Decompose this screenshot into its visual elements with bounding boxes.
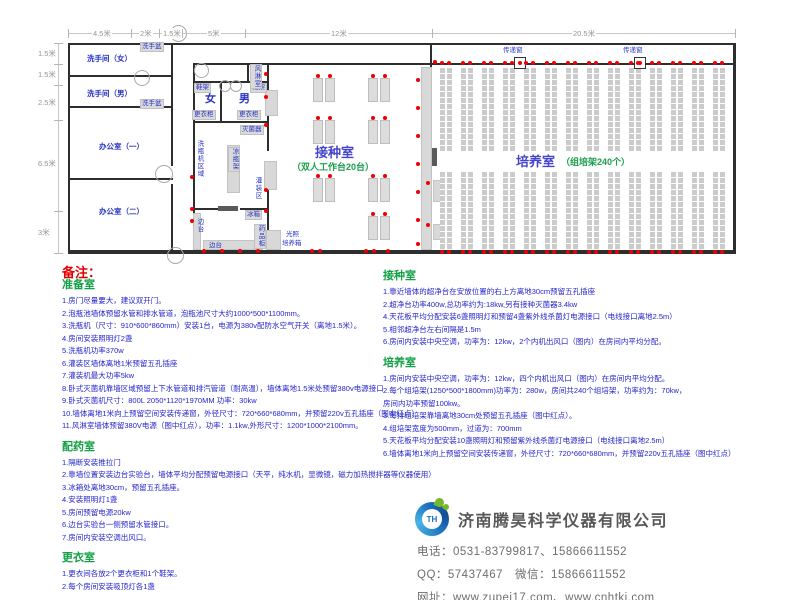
door-arc (155, 165, 173, 183)
culture-shelf-column (503, 171, 515, 250)
company-logo-icon: TH (415, 502, 449, 536)
note-item: 2.泡瓶池墙体预留水管和排水管道，泡瓶池尺寸大约1000*500*1100mm。 (62, 308, 436, 321)
outlet-dot (489, 61, 493, 65)
dimension-label: 1.5米 (162, 28, 182, 39)
culture-shelf-column (587, 171, 599, 250)
culture-shelf-column (482, 67, 494, 151)
outlet-dot (202, 249, 206, 253)
outlet-dot (190, 207, 194, 211)
outlet-dot (371, 74, 375, 78)
note-column-1: 准备室1.房门尽量要大，建议双开门。2.泡瓶池墙体预留水管和排水管道，泡瓶池尺寸… (62, 279, 436, 593)
room-label: 办公室（一） (99, 141, 144, 152)
outlet-dot (364, 249, 368, 253)
note-section-title: 更衣室 (62, 552, 436, 565)
outlet-dot (264, 123, 268, 127)
equipment-label: 灭菌器 (240, 125, 264, 135)
outlet-dot (545, 61, 549, 65)
workbench (368, 120, 378, 144)
outlet-dot (386, 249, 390, 253)
room-title-label: 培养室 (516, 151, 555, 170)
workbench (368, 216, 378, 240)
note-item: 4.天花板平均分配安装6盏照明灯和预留4盏紫外线杀菌灯电源接口（电线接口离地2.… (383, 311, 736, 324)
outlet-dot (629, 61, 633, 65)
note-item: 2.靠墙位置安装边台实验台，墙体平均分配预留电源接口（天平，纯水机，显微镜，磁力… (62, 469, 436, 482)
dimension-tick (54, 43, 63, 44)
outlet-dot (383, 74, 387, 78)
door-arc (134, 70, 150, 86)
culture-shelf-column (629, 67, 641, 151)
outlet-dot (440, 250, 444, 254)
wall (171, 184, 173, 250)
outlet-dot (461, 250, 465, 254)
company-web-line: 网址：www.zupei17.com、www.cnhtkj.com (417, 589, 745, 600)
outlet-dot (328, 174, 332, 178)
workbench (380, 78, 390, 102)
equipment-label: 传递窗 (503, 47, 523, 55)
culture-shelf-column (566, 171, 578, 250)
equipment-label: 冰箱 (245, 210, 262, 220)
culture-shelf-column (545, 67, 557, 151)
equipment-label: 药品柜 (254, 224, 266, 249)
outlet-dot (573, 250, 577, 254)
outlet-dot (447, 61, 451, 65)
dimension-tick (182, 29, 183, 38)
equipment-label: 光照 (286, 231, 299, 239)
equipment-label: 鞋架 (194, 83, 211, 93)
wall (68, 75, 173, 77)
outlet-dot (371, 212, 375, 216)
equipment-label: 更衣柜 (237, 110, 261, 120)
note-item: 4.组培架宽度为500mm，过道为：700mm (383, 423, 736, 436)
culture-shelf-column (608, 171, 620, 250)
outlet-dot (383, 212, 387, 216)
outlet-dot (566, 250, 570, 254)
note-item: 6.房间内安装中央空调，功率为：12kw，2个内机出风口（图内）在房间内平均分配… (383, 336, 736, 349)
wall (247, 63, 249, 83)
room-label: 男 (239, 90, 250, 106)
culture-shelf-column (524, 171, 536, 250)
outlet-dot (518, 61, 522, 65)
room-label: 办公室（二） (99, 206, 144, 217)
outlet-dot (220, 249, 224, 253)
dimension-tick (245, 29, 246, 38)
note-item: 4.房间安装照明灯2盏 (62, 333, 436, 346)
outlet-dot (657, 61, 661, 65)
workbench (380, 178, 390, 202)
outlet-dot (594, 61, 598, 65)
note-item: 5.相邻超净台左右间隔是1.5m (383, 324, 736, 337)
dimension-label: 2.5米 (37, 97, 57, 108)
outlet-dot (510, 61, 514, 65)
outlet-dot (383, 116, 387, 120)
note-item: 8.卧式灭菌机靠墙区域预留上下水管道和排汽管道（耐高温），墙体离地1.5米处预留… (62, 383, 436, 396)
outlet-dot (713, 250, 717, 254)
dimension-tick (54, 253, 63, 254)
outlet-dot (594, 250, 598, 254)
outlet-dot (316, 116, 320, 120)
dimension-label: 5米 (207, 28, 221, 39)
wall (193, 121, 269, 123)
note-item: 6.墙体离地1米向上预留空间安装传递窗，外径尺寸：720*660*680mm，并… (383, 448, 736, 461)
equipment-label: 边台 (195, 218, 203, 233)
outlet-dot (608, 61, 612, 65)
equipment-label: 灌装区 (253, 177, 261, 200)
culture-shelf-column (587, 67, 599, 151)
outlet-dot (264, 95, 268, 99)
outlet-dot (587, 61, 591, 65)
culture-shelf-column (650, 67, 662, 151)
wall (171, 43, 173, 166)
equipment-box (264, 161, 277, 190)
culture-shelf-column (524, 67, 536, 151)
outlet-dot (416, 190, 420, 194)
note-item: 9.卧式灭菌机尺寸：800L 2050*1120*1970MM 功率：30kw (62, 395, 436, 408)
outlet-dot (426, 181, 430, 185)
culture-shelf-column (545, 171, 557, 250)
culture-shelf-column (440, 171, 452, 250)
equipment-label: 培养箱 (282, 240, 302, 248)
equipment-label: 凉瓶架 (228, 147, 240, 172)
outlet-dot (692, 61, 696, 65)
outlet-dot (615, 61, 619, 65)
equipment-label: 风淋室 (250, 64, 262, 89)
dimension-label: 12米 (330, 28, 348, 39)
note-item: 3.冰箱处离地30cm，预留五孔插座。 (62, 482, 436, 495)
workbench (313, 178, 323, 202)
dimension-line-left (58, 43, 59, 253)
wall (733, 43, 736, 254)
equipment-box (265, 90, 278, 116)
outlet-dot (531, 250, 535, 254)
dimension-tick (54, 85, 63, 86)
dimension-label: 6.5米 (37, 158, 57, 169)
dimension-tick (735, 29, 736, 38)
outlet-dot (264, 188, 268, 192)
logo-monogram: TH (422, 509, 442, 529)
outlet-dot (310, 249, 314, 253)
dimension-label: 2米 (139, 28, 153, 39)
dimension-tick (54, 211, 63, 212)
workbench (325, 120, 335, 144)
outlet-dot (510, 250, 514, 254)
dimension-tick (131, 29, 132, 38)
workbench (325, 78, 335, 102)
outlet-dot (566, 61, 570, 65)
culture-shelf-column (671, 171, 683, 250)
dimension-tick (432, 29, 433, 38)
outlet-dot (468, 250, 472, 254)
culture-shelf-column (566, 67, 578, 151)
culture-shelf-column (482, 171, 494, 250)
outlet-dot (671, 250, 675, 254)
note-section-title: 培养室 (383, 357, 736, 370)
outlet-dot (678, 250, 682, 254)
outlet-dot (190, 175, 194, 179)
note-item: 1.房间内安装中央空调，功率为：12kw，四个内机出风口（图内）在房间内平均分配… (383, 373, 736, 386)
room-label: 洗手间（女） (87, 53, 132, 64)
outlet-dot (552, 250, 556, 254)
note-column-2: 接种室1.靠近墙体的超净台在安放位置的右上方离地30cm预留五孔插座2.超净台功… (383, 270, 736, 460)
outlet-dot (699, 61, 703, 65)
room-subtitle-label: （双人工作台20台） (292, 160, 374, 173)
dimension-tick (159, 29, 160, 38)
room-title-label: 接种室 (315, 142, 354, 161)
outlet-dot (371, 116, 375, 120)
outlet-dot (629, 250, 633, 254)
dimension-label: 1.5米 (37, 69, 57, 80)
note-item: 2.每个组培架(1250*500*1800mm)功率为：280w，房间共240个… (383, 385, 736, 398)
outlet-dot (531, 61, 535, 65)
outlet-dot (720, 61, 724, 65)
outlet-dot (636, 250, 640, 254)
outlet-dot (503, 61, 507, 65)
outlet-dot (720, 250, 724, 254)
door-slab (218, 206, 238, 211)
note-item: 7.房间内安装空调出风口。 (62, 532, 436, 545)
note-section-title: 准备室 (62, 279, 436, 292)
outlet-dot (264, 72, 268, 76)
culture-shelf-column (503, 67, 515, 151)
outlet-dot (190, 219, 194, 223)
wall (193, 208, 221, 210)
dimension-label: 3米 (37, 227, 51, 238)
culture-shelf-column (461, 67, 473, 151)
door-arc (167, 247, 184, 264)
equipment-label: 洗手盆 (140, 42, 164, 52)
outlet-dot (316, 174, 320, 178)
dimension-tick (68, 29, 69, 38)
door-arc (194, 63, 209, 78)
workbench (368, 78, 378, 102)
company-block: TH 济南腾昊科学仪器有限公司 电话：0531-83799817、1586661… (415, 502, 745, 600)
equipment-label: 洗手盆 (140, 99, 164, 109)
outlet-dot (416, 162, 420, 166)
note-item: 1.房门尽量要大，建议双开门。 (62, 295, 436, 308)
note-item: 3.洗瓶机（尺寸：910*600*860mm）安装1台，电源为380v配防水空气… (62, 320, 436, 333)
outlet-dot (692, 250, 696, 254)
outlet-dot (489, 250, 493, 254)
culture-shelf-column (608, 67, 620, 151)
dimension-label: 4.5米 (92, 28, 112, 39)
note-item: 11.风淋室墙体预留380V电源（图中红点），功率：1.1kw,外形尺寸：120… (62, 420, 436, 433)
culture-shelf-column (650, 171, 662, 250)
note-item: 1.更衣间各放2个更衣柜和1个鞋架。 (62, 568, 436, 581)
culture-shelf-column (713, 171, 725, 250)
outlet-dot (328, 74, 332, 78)
note-item: 6.灌装区墙体离地1米预留五孔插座 (62, 358, 436, 371)
outlet-dot (713, 61, 717, 65)
outlet-dot (524, 61, 528, 65)
outlet-dot (587, 250, 591, 254)
outlet-dot (416, 218, 420, 222)
culture-shelf-column (440, 67, 452, 151)
dimension-label: 20.5米 (572, 28, 596, 39)
note-section-title: 接种室 (383, 270, 736, 283)
outlet-dot (699, 250, 703, 254)
outlet-dot (316, 74, 320, 78)
outlet-dot (416, 78, 420, 82)
outlet-dot (545, 250, 549, 254)
workbench (325, 178, 335, 202)
culture-shelf-column (671, 67, 683, 151)
room-label: 洗手间（男） (87, 88, 132, 99)
note-item: 2.超净台功率400w,总功率约为:18kw,另有接种灭菌器3.4kw (383, 299, 736, 312)
outlet-dot (482, 61, 486, 65)
outlet-dot (468, 61, 472, 65)
note-item: 1.靠近墙体的超净台在安放位置的右上方离地30cm预留五孔插座 (383, 286, 736, 299)
outlet-dot (678, 61, 682, 65)
outlet-dot (383, 174, 387, 178)
outlet-dot (416, 106, 420, 110)
outlet-dot (372, 249, 376, 253)
outlet-dot (371, 174, 375, 178)
door-slab (432, 148, 437, 166)
outlet-dot (256, 249, 260, 253)
culture-shelf-column (461, 171, 473, 250)
outlet-dot (573, 61, 577, 65)
culture-shelf-column (713, 67, 725, 151)
outlet-dot (328, 116, 332, 120)
outlet-dot (503, 250, 507, 254)
outlet-dot (461, 61, 465, 65)
outlet-dot (671, 61, 675, 65)
outlet-dot (650, 250, 654, 254)
note-item: 2.每个房间安装吸顶灯各1盏 (62, 581, 436, 594)
wall (68, 43, 735, 45)
outlet-dot (657, 250, 661, 254)
outlet-dot (426, 223, 430, 227)
outlet-dot (638, 61, 642, 65)
outlet-dot (482, 250, 486, 254)
room-subtitle-label: （组培架240个） (561, 155, 630, 168)
note-section-title: 配药室 (62, 441, 436, 454)
workbench (380, 216, 390, 240)
company-name: 济南腾昊科学仪器有限公司 (458, 507, 668, 531)
note-item: 3.每排组培架靠墙离地30cm处预留五孔插座（图中红点）。 (383, 410, 736, 423)
equipment-box (266, 230, 281, 250)
page: 4.5米2米1.5米5米12米20.5米1.5米1.5米2.5米6.5米3米洗手… (0, 0, 800, 600)
equipment-label: 传递窗 (623, 47, 643, 55)
company-qq-line: QQ：57437467 微信：15866611552 (417, 566, 745, 582)
workbench (368, 178, 378, 202)
note-item: 6.边台实验台一侧预留水管接口。 (62, 519, 436, 532)
note-item: 7.灌装机最大功率5kw (62, 370, 436, 383)
note-item: 1.隔断安装推拉门 (62, 457, 436, 470)
note-item: 4.安装照明灯1盏 (62, 494, 436, 507)
company-phone-line: 电话：0531-83799817、15866611552 (417, 543, 745, 559)
note-item: 5.房间预留电源20kw (62, 507, 436, 520)
note-item: 5.洗瓶机功率370w (62, 345, 436, 358)
equipment-label: 更衣柜 (192, 110, 216, 120)
workbench (313, 78, 323, 102)
note-item: 房间内功率预留100kw。 (383, 398, 736, 411)
note-item: 5.天花板平均分配安装10盏照明灯和预留紫外线杀菌灯电源接口（电线接口离地2.5… (383, 435, 736, 448)
outlet-dot (433, 60, 437, 64)
outlet-dot (608, 250, 612, 254)
outlet-dot (238, 249, 242, 253)
dimension-tick (54, 120, 63, 121)
culture-shelf-column (692, 67, 704, 151)
outlet-dot (440, 61, 444, 65)
outlet-dot (524, 250, 528, 254)
outlet-dot (416, 242, 420, 246)
culture-shelf-column (692, 171, 704, 250)
culture-shelf-column (629, 171, 641, 250)
outlet-dot (650, 61, 654, 65)
workbench (380, 120, 390, 144)
note-item: 10.墙体离地1米向上预留空间安装传递窗，外径尺寸：720*660*680mm，… (62, 408, 436, 421)
dimension-tick (54, 64, 63, 65)
outlet-dot (318, 249, 322, 253)
outlet-dot (416, 134, 420, 138)
equipment-label: 洗瓶机区域 (195, 140, 203, 178)
dimension-label: 1.5米 (37, 48, 57, 59)
outlet-dot (615, 250, 619, 254)
workbench (313, 120, 323, 144)
outlet-dot (264, 209, 268, 213)
outlet-dot (552, 61, 556, 65)
outlet-dot (447, 250, 451, 254)
